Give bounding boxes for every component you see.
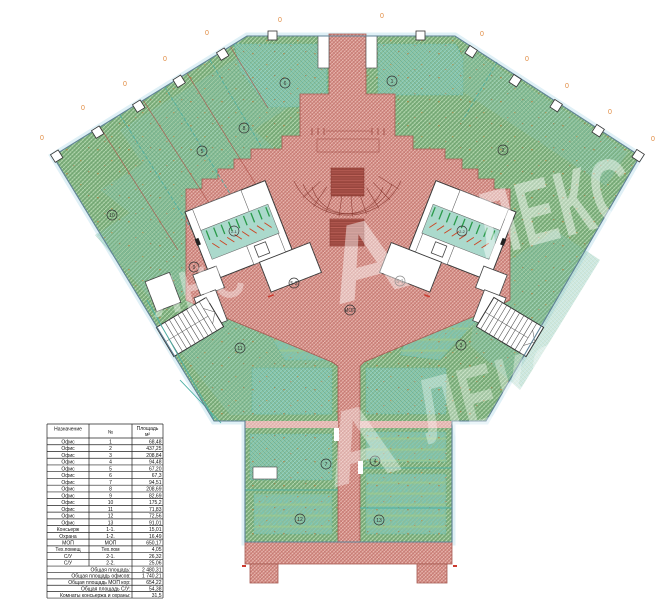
svg-text:Тех.помещ: Тех.помещ bbox=[55, 547, 80, 553]
svg-text:0: 0 bbox=[123, 81, 127, 88]
svg-text:650,17: 650,17 bbox=[146, 541, 162, 547]
svg-text:Назначение: Назначение bbox=[54, 427, 82, 433]
svg-text:10: 10 bbox=[109, 213, 115, 219]
svg-text:67,3: 67,3 bbox=[152, 473, 162, 479]
svg-text:68,48: 68,48 bbox=[149, 439, 162, 445]
svg-text:Консьерж: Консьерж bbox=[57, 527, 80, 533]
svg-text:8: 8 bbox=[109, 487, 112, 493]
svg-text:0: 0 bbox=[565, 83, 569, 90]
svg-text:2-1: 2-1 bbox=[231, 229, 238, 234]
svg-text:2-1.: 2-1. bbox=[106, 554, 115, 560]
svg-text:Комнаты консьержа и охраны:: Комнаты консьержа и охраны: bbox=[60, 593, 131, 599]
svg-text:2 480,31: 2 480,31 bbox=[142, 567, 162, 573]
svg-text:1 740,21: 1 740,21 bbox=[142, 574, 162, 580]
svg-text:Офис: Офис bbox=[61, 480, 75, 486]
svg-text:5-2: 5-2 bbox=[290, 281, 297, 287]
svg-text:1: 1 bbox=[109, 439, 112, 445]
svg-text:С/У: С/У bbox=[64, 561, 73, 567]
svg-text:67,20: 67,20 bbox=[149, 466, 162, 472]
svg-text:16,49: 16,49 bbox=[149, 534, 162, 540]
svg-text:Офис: Офис bbox=[61, 453, 75, 459]
svg-text:1: 1 bbox=[391, 79, 394, 85]
svg-text:МОП: МОП bbox=[105, 541, 117, 547]
svg-text:№: № bbox=[108, 430, 113, 436]
svg-text:0: 0 bbox=[651, 136, 655, 143]
svg-text:Общая площадь офисов:: Общая площадь офисов: bbox=[71, 574, 130, 580]
svg-text:4: 4 bbox=[109, 460, 112, 466]
svg-text:2: 2 bbox=[109, 446, 112, 452]
svg-text:94,48: 94,48 bbox=[149, 460, 162, 466]
svg-text:11: 11 bbox=[237, 346, 242, 352]
svg-text:Офис: Офис bbox=[61, 514, 75, 520]
svg-text:0: 0 bbox=[380, 13, 384, 20]
svg-text:82,69: 82,69 bbox=[149, 493, 162, 499]
svg-text:5: 5 bbox=[109, 466, 112, 472]
svg-text:72,56: 72,56 bbox=[149, 514, 162, 520]
svg-text:6: 6 bbox=[284, 81, 287, 87]
svg-text:Офис: Офис bbox=[61, 500, 75, 506]
svg-text:2-2.: 2-2. bbox=[106, 561, 115, 567]
svg-text:10: 10 bbox=[108, 500, 114, 506]
svg-text:Офис: Офис bbox=[61, 439, 75, 445]
svg-text:437,25: 437,25 bbox=[146, 446, 162, 452]
svg-text:Тех.пом: Тех.пом bbox=[101, 547, 120, 553]
svg-text:Офис: Офис bbox=[61, 460, 75, 466]
svg-text:91,01: 91,01 bbox=[149, 520, 162, 526]
svg-text:12: 12 bbox=[108, 514, 114, 520]
svg-text:26,32: 26,32 bbox=[149, 554, 162, 560]
svg-text:94,51: 94,51 bbox=[149, 480, 162, 486]
svg-text:175,2: 175,2 bbox=[149, 500, 162, 506]
svg-text:0: 0 bbox=[163, 56, 167, 63]
svg-text:0: 0 bbox=[525, 56, 529, 63]
svg-text:2: 2 bbox=[502, 148, 505, 154]
svg-text:0: 0 bbox=[205, 30, 209, 37]
svg-text:25,06: 25,06 bbox=[149, 561, 162, 567]
svg-text:0: 0 bbox=[278, 17, 282, 24]
svg-text:8: 8 bbox=[243, 126, 246, 132]
svg-text:Общая площадь С/У:: Общая площадь С/У: bbox=[81, 586, 130, 592]
svg-text:54,38: 54,38 bbox=[149, 586, 162, 592]
svg-text:Офис: Офис bbox=[61, 507, 75, 513]
svg-text:208,69: 208,69 bbox=[146, 487, 162, 493]
svg-text:0: 0 bbox=[40, 135, 44, 142]
svg-text:7: 7 bbox=[109, 480, 112, 486]
svg-text:1-1.: 1-1. bbox=[106, 527, 115, 533]
svg-text:Охрана: Охрана bbox=[59, 534, 77, 540]
svg-text:13: 13 bbox=[108, 520, 114, 526]
svg-text:0: 0 bbox=[81, 105, 85, 112]
svg-text:654,22: 654,22 bbox=[146, 580, 162, 586]
svg-text:15,01: 15,01 bbox=[149, 527, 162, 533]
svg-text:м²: м² bbox=[145, 432, 150, 438]
svg-text:С/У: С/У bbox=[64, 554, 73, 560]
svg-text:Общая площадь:: Общая площадь: bbox=[90, 567, 130, 573]
svg-text:Офис: Офис bbox=[61, 493, 75, 499]
svg-text:31,5: 31,5 bbox=[152, 593, 162, 599]
svg-text:МОП: МОП bbox=[62, 541, 74, 547]
svg-text:6: 6 bbox=[109, 473, 112, 479]
svg-text:3: 3 bbox=[109, 453, 112, 459]
svg-text:11: 11 bbox=[108, 507, 113, 513]
svg-text:9: 9 bbox=[109, 493, 112, 499]
svg-text:5: 5 bbox=[201, 149, 204, 155]
svg-text:3: 3 bbox=[460, 343, 463, 349]
svg-text:1-2.: 1-2. bbox=[106, 534, 115, 540]
svg-text:0: 0 bbox=[480, 31, 484, 38]
svg-text:4,05: 4,05 bbox=[152, 547, 162, 553]
svg-text:Офис: Офис bbox=[61, 520, 75, 526]
svg-text:0: 0 bbox=[608, 109, 612, 116]
svg-text:71,83: 71,83 bbox=[149, 507, 162, 513]
svg-text:Общая площадь МОП кор:: Общая площадь МОП кор: bbox=[68, 580, 130, 586]
svg-text:Офис: Офис bbox=[61, 487, 75, 493]
svg-text:Офис: Офис bbox=[61, 446, 75, 452]
svg-text:Офис: Офис bbox=[61, 466, 75, 472]
svg-text:13: 13 bbox=[376, 518, 382, 524]
svg-text:2-2: 2-2 bbox=[459, 229, 466, 234]
svg-text:Офис: Офис bbox=[61, 473, 75, 479]
svg-text:208,84: 208,84 bbox=[146, 453, 162, 459]
svg-text:12: 12 bbox=[297, 517, 303, 523]
